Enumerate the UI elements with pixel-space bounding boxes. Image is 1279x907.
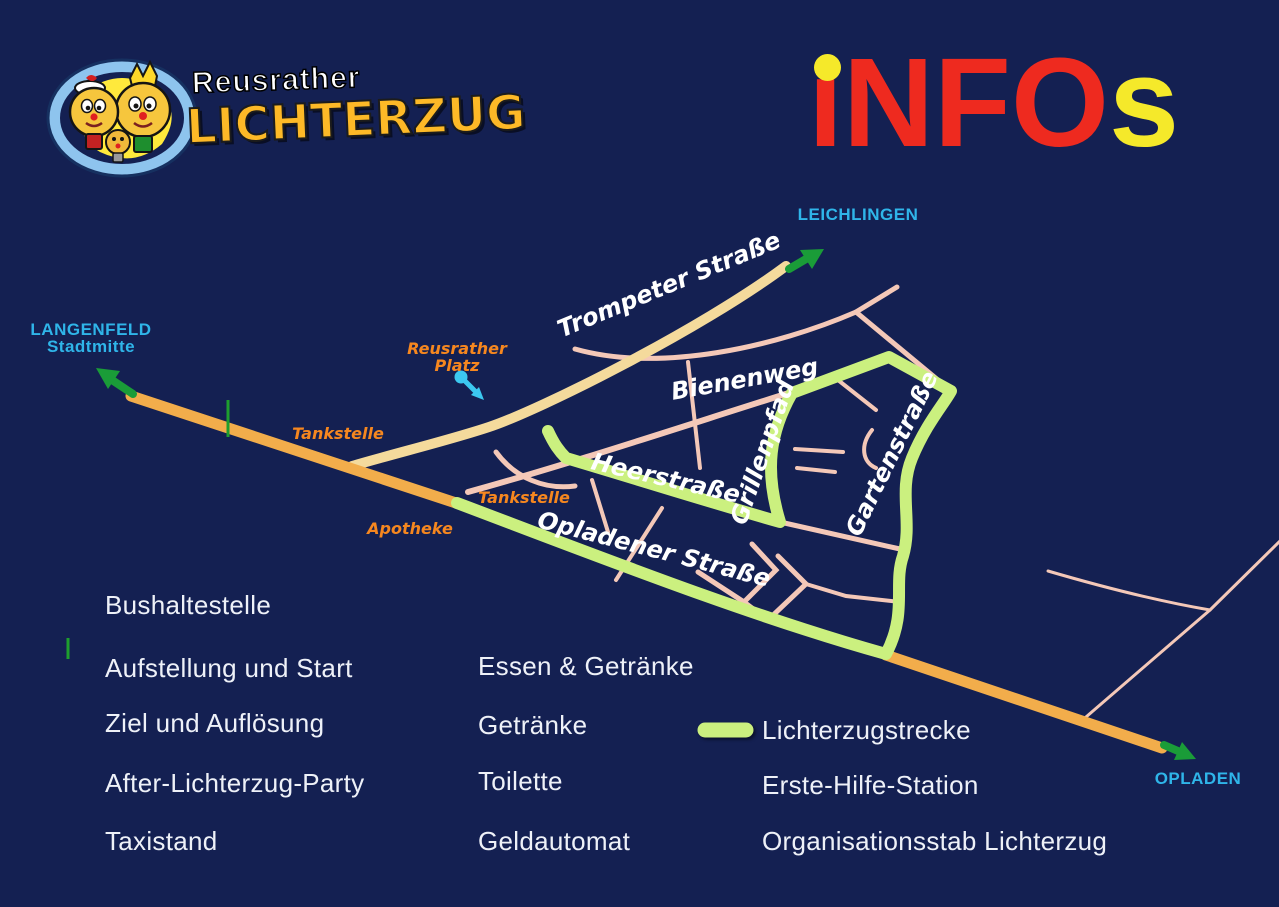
city-langenfeld-2: Stadtmitte xyxy=(47,337,135,356)
legend: Bushaltestelle Aufstellung und Start Zie… xyxy=(105,590,1107,856)
event-map: LANGENFELD Stadtmitte LEICHLINGEN OPLADE… xyxy=(0,0,1279,907)
legend-toilette: Toilette xyxy=(478,766,563,796)
city-opladen: OPLADEN xyxy=(1155,769,1242,788)
direction-arrows xyxy=(96,249,1196,760)
legend-essen: Essen & Getränke xyxy=(478,651,694,681)
street-label-bienenweg: Bienenweg xyxy=(669,352,820,405)
street-parallel-1 xyxy=(795,449,843,452)
legend-ziel: Ziel und Auflösung xyxy=(105,708,324,738)
legend-getraenke: Getränke xyxy=(478,710,587,740)
street-se-curve xyxy=(1048,571,1210,610)
poi-tankstelle-nw: Tankstelle xyxy=(292,424,384,443)
poi-reusrather-platz-2: Platz xyxy=(435,356,481,375)
street-block-3 xyxy=(806,584,900,602)
poi-apotheke: Apotheke xyxy=(365,519,453,538)
arrow-leichlingen xyxy=(789,249,824,269)
street-parallel-2 xyxy=(797,468,835,472)
street-ne-spur xyxy=(838,380,876,410)
street-label-heerstrasse: Heerstraße xyxy=(589,447,743,508)
street-se-down xyxy=(1086,610,1210,717)
lichterzug-info-flyer: { "colors": { "background": "#142052", "… xyxy=(0,0,1279,907)
arrow-opladen xyxy=(1164,742,1196,760)
legend-start: Aufstellung und Start xyxy=(105,653,353,683)
legend-strecke: Lichterzugstrecke xyxy=(762,715,971,745)
poi-labels: Tankstelle Tankstelle Apotheke Reusrathe… xyxy=(292,339,570,538)
poi-tankstelle-s: Tankstelle xyxy=(478,488,570,507)
legend-erstehilfe: Erste-Hilfe-Station xyxy=(762,770,979,800)
city-leichlingen: LEICHLINGEN xyxy=(798,205,919,224)
street-label-trompeter: Trompeter Straße xyxy=(553,226,784,343)
legend-party: After-Lichterzug-Party xyxy=(105,768,364,798)
legend-geldautomat: Geldautomat xyxy=(478,826,631,856)
arrow-langenfeld xyxy=(96,368,133,394)
road-trompeter xyxy=(352,266,786,466)
legend-orgstab: Organisationsstab Lichterzug xyxy=(762,826,1107,856)
street-se-up xyxy=(1210,540,1279,610)
legend-taxistand: Taxistand xyxy=(105,826,218,856)
legend-bushaltestelle: Bushaltestelle xyxy=(105,590,271,620)
